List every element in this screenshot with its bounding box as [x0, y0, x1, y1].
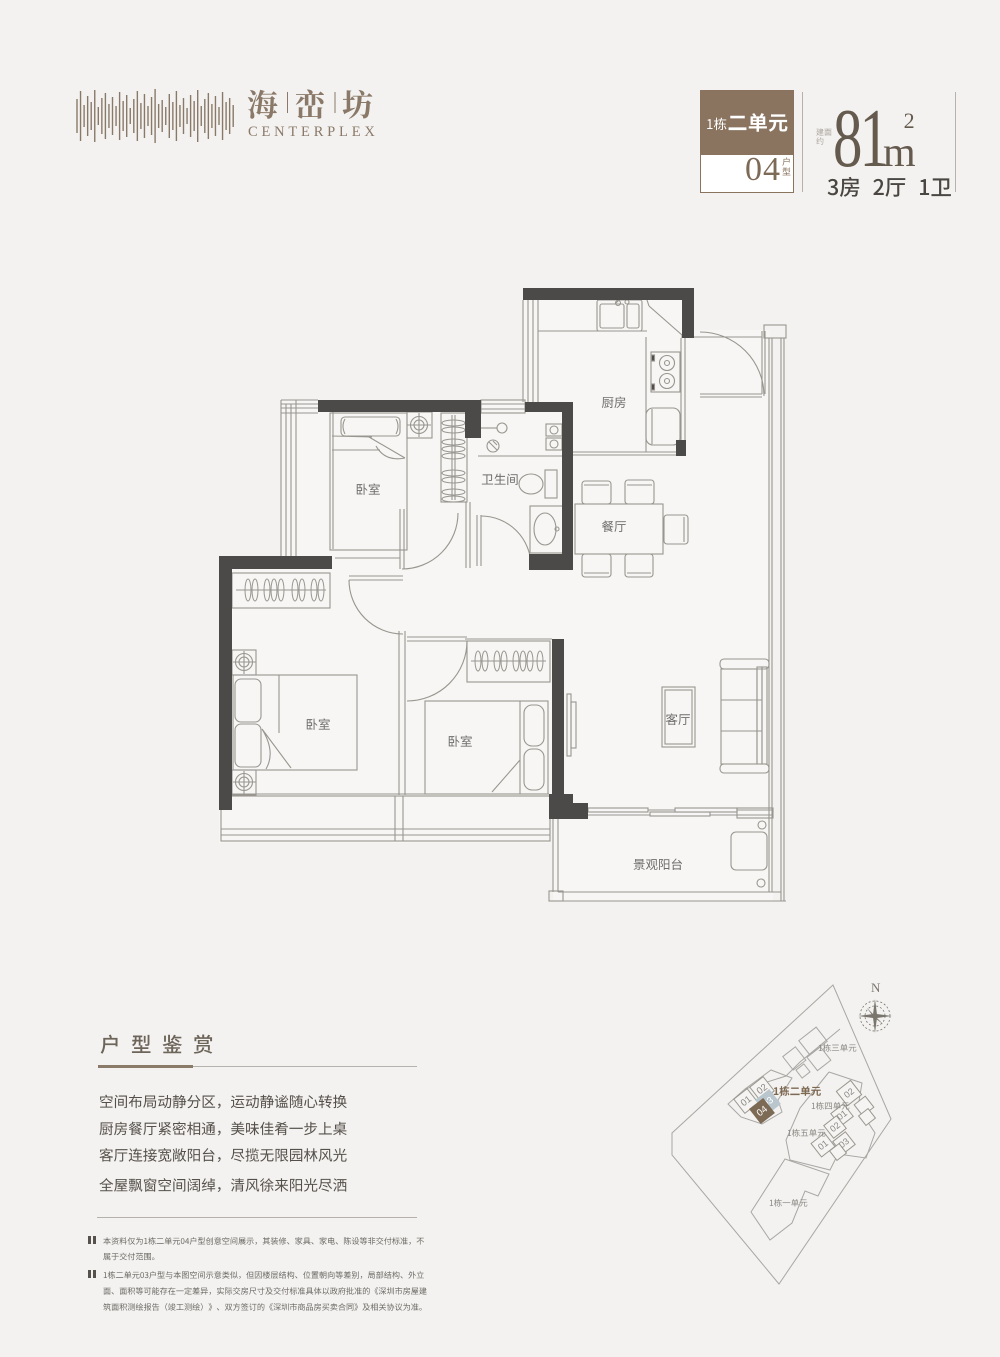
svg-text:N: N — [871, 980, 881, 995]
